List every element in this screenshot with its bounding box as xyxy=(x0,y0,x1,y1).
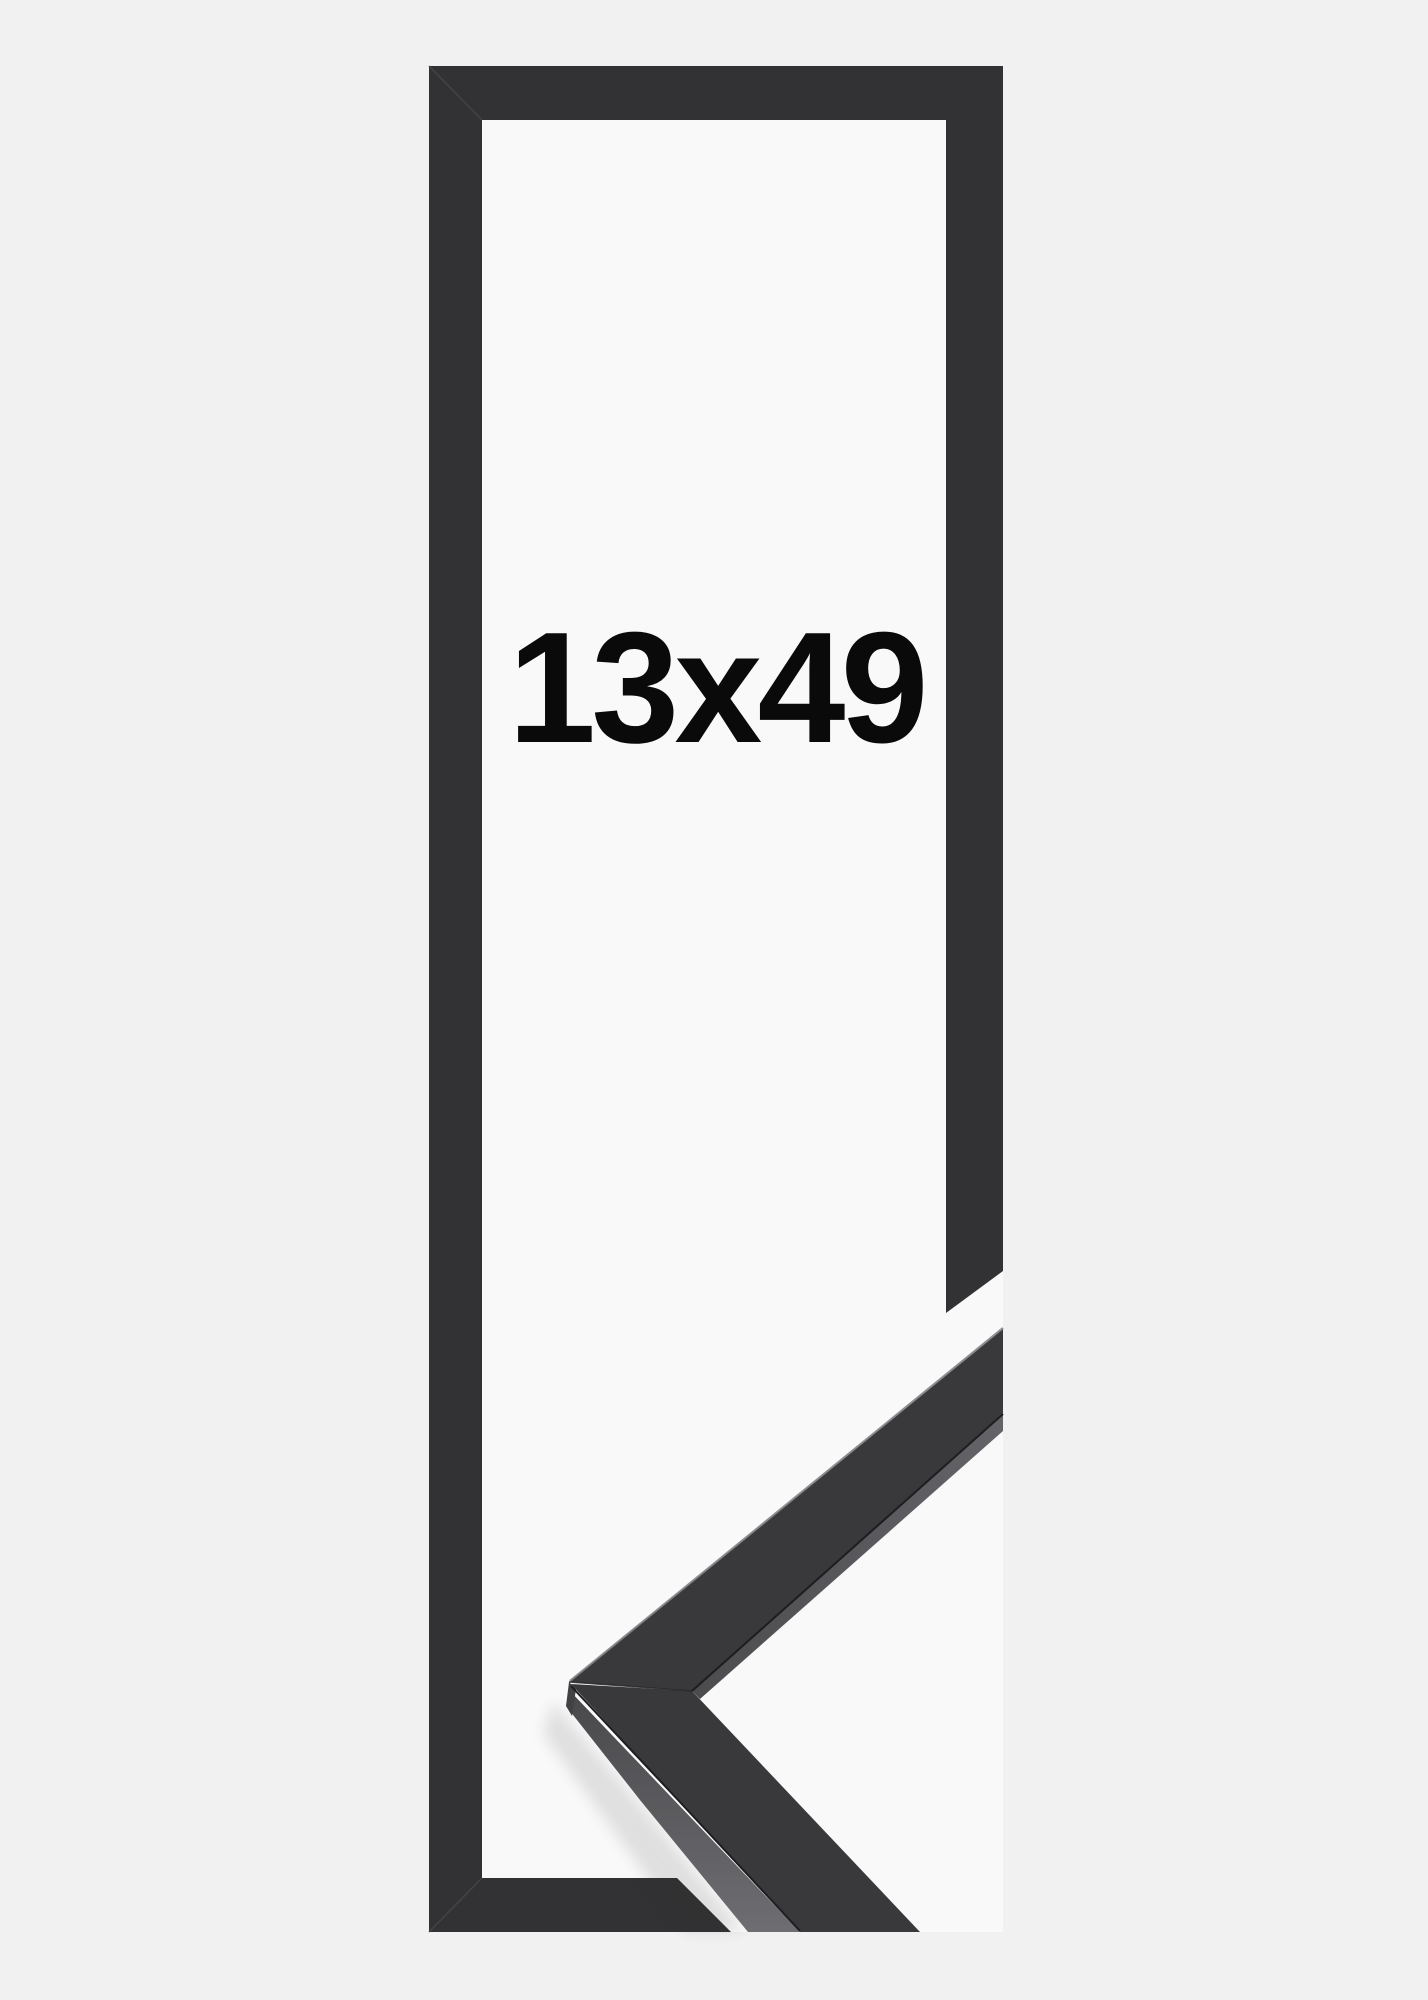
frame-size-label: 13x49 xyxy=(429,609,1003,767)
frame-top-bar xyxy=(429,66,1003,120)
frame-illustration xyxy=(0,0,1428,2000)
frame-left-bar xyxy=(429,66,482,1932)
product-image-frame-13x49: 13x49 xyxy=(0,0,1428,2000)
